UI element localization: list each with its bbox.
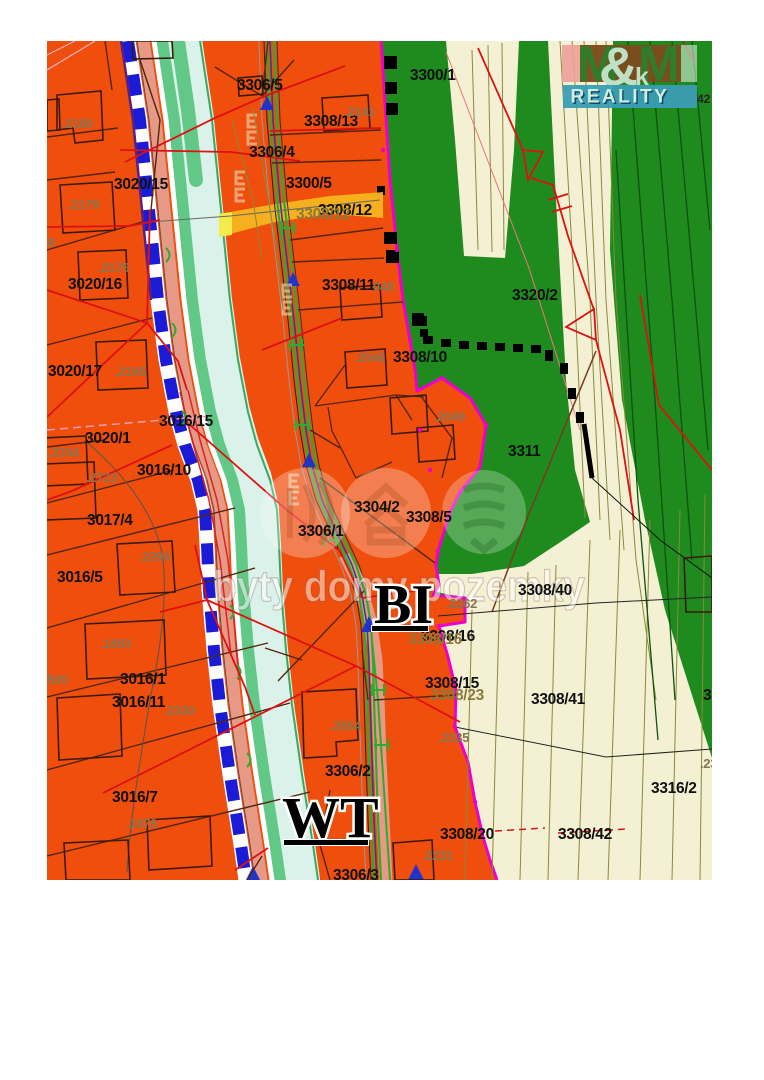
- svg-text:3: 3: [703, 687, 712, 704]
- svg-text:.2296: .2296: [139, 549, 170, 564]
- svg-text:3016/10: 3016/10: [137, 462, 191, 479]
- svg-text:.2262: .2262: [446, 596, 477, 611]
- svg-text:.2179: .2179: [68, 197, 99, 212]
- svg-text:3306/1: 3306/1: [298, 523, 344, 540]
- svg-text:3308/10: 3308/10: [393, 349, 447, 366]
- svg-text:8: 8: [48, 235, 55, 250]
- svg-text:.2046: .2046: [354, 350, 385, 365]
- svg-text:3316/2: 3316/2: [651, 780, 697, 797]
- svg-text:.2176: .2176: [98, 260, 129, 275]
- svg-text:.1878: .1878: [126, 816, 157, 831]
- svg-text:3320/2: 3320/2: [512, 287, 558, 304]
- svg-text:3306/4: 3306/4: [249, 144, 295, 161]
- svg-text:.2335: .2335: [438, 730, 469, 745]
- svg-text:3308/5: 3308/5: [406, 509, 452, 526]
- svg-text:.2231: .2231: [422, 848, 453, 863]
- svg-text:3304/2: 3304/2: [354, 499, 400, 516]
- svg-text:.2334: .2334: [48, 445, 80, 460]
- svg-text:3306/5: 3306/5: [237, 77, 283, 94]
- svg-text:.2141: .2141: [344, 104, 375, 119]
- svg-text:3016/15: 3016/15: [159, 413, 214, 430]
- svg-text:3016/5: 3016/5: [57, 569, 103, 586]
- svg-text:3308/23: 3308/23: [430, 687, 485, 704]
- svg-text:.2723: .2723: [86, 470, 117, 485]
- svg-text:3020/15: 3020/15: [114, 176, 169, 193]
- svg-text:.2664: .2664: [330, 718, 362, 733]
- svg-text:3306/2: 3306/2: [325, 763, 371, 780]
- svg-text:3300/5: 3300/5: [286, 175, 332, 192]
- svg-text:3308/41: 3308/41: [531, 691, 586, 708]
- svg-text:3308/40: 3308/40: [518, 582, 572, 599]
- svg-text:3308/12: 3308/12: [296, 206, 350, 223]
- svg-text:3016/7: 3016/7: [112, 789, 158, 806]
- svg-text:3020/16: 3020/16: [68, 276, 123, 293]
- svg-text:3016/1: 3016/1: [120, 671, 166, 688]
- svg-text:3311: 3311: [508, 443, 541, 460]
- svg-text:3020/17: 3020/17: [48, 363, 102, 380]
- svg-text:.2330: .2330: [164, 703, 195, 718]
- svg-text:42: 42: [697, 92, 711, 106]
- svg-text:3016/11: 3016/11: [112, 694, 166, 711]
- svg-text:3308/20: 3308/20: [440, 826, 494, 843]
- svg-text:048: 048: [373, 279, 394, 294]
- svg-text:.2049: .2049: [434, 409, 465, 424]
- svg-text:3308/42: 3308/42: [558, 826, 612, 843]
- svg-text:3017/4: 3017/4: [87, 512, 133, 529]
- svg-text:500: 500: [47, 672, 68, 687]
- svg-text:3020/1: 3020/1: [85, 430, 131, 447]
- svg-text:3308/11: 3308/11: [322, 277, 376, 294]
- svg-text:.2195: .2195: [115, 364, 146, 379]
- svg-text:.2180: .2180: [62, 116, 93, 131]
- svg-text:3300/1: 3300/1: [410, 67, 456, 84]
- svg-text:.1893: .1893: [100, 636, 131, 651]
- svg-text:REALITY: REALITY: [571, 87, 670, 108]
